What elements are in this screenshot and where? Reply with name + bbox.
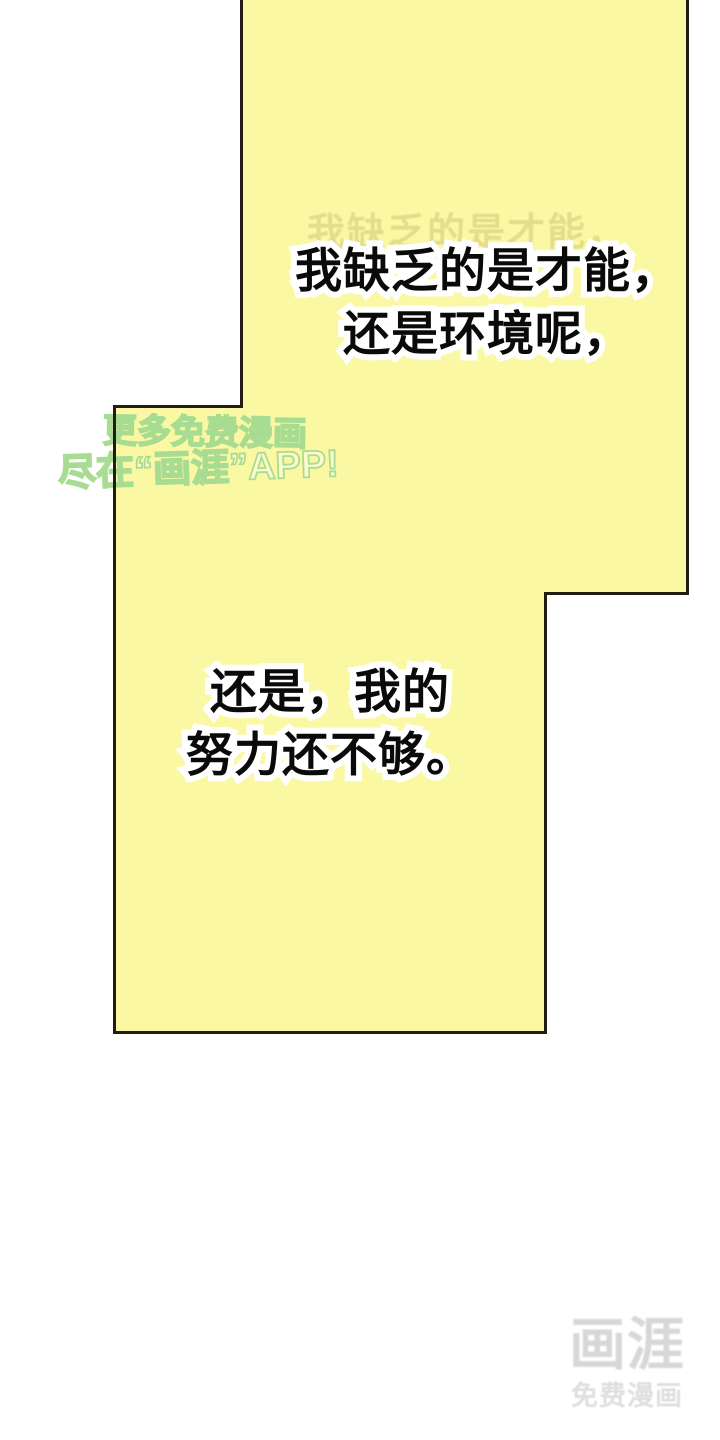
- panel1-narration: 我缺乏的是才能， 我缺乏的是才能， 还是环境呢， 还是环境呢，: [267, 239, 707, 365]
- panel1-narration-line1: 我缺乏的是才能， 我缺乏的是才能，: [267, 239, 707, 302]
- panel1-narration-line2: 还是环境呢， 还是环境呢，: [267, 302, 707, 365]
- panel2-narration-line1: 还是，我的 还是，我的: [110, 660, 550, 723]
- panel2-line2-text: 努力还不够。: [186, 728, 474, 781]
- panel2-narration: 还是，我的 还是，我的 努力还不够。 努力还不够。: [110, 660, 550, 786]
- brand-logo-text: 画涯: [556, 1316, 698, 1374]
- comic-page: 更多免费漫画 尽在“画涯”APP! 我缺乏的是才能， 我缺乏的是才能， 我缺乏的…: [0, 0, 720, 1440]
- panel2-narration-line2: 努力还不够。 努力还不够。: [110, 723, 550, 786]
- text-layer: 我缺乏的是才能， 我缺乏的是才能， 我缺乏的是才能， 还是环境呢， 还是环境呢，…: [0, 0, 720, 1440]
- panel1-line2-text: 还是环境呢，: [343, 307, 631, 360]
- panel1-line1-text: 我缺乏的是才能，: [295, 244, 679, 297]
- panel2-line1-text: 还是，我的: [210, 665, 450, 718]
- brand-badge: 画涯 免费漫画: [556, 1316, 698, 1410]
- brand-tagline: 免费漫画: [556, 1382, 698, 1410]
